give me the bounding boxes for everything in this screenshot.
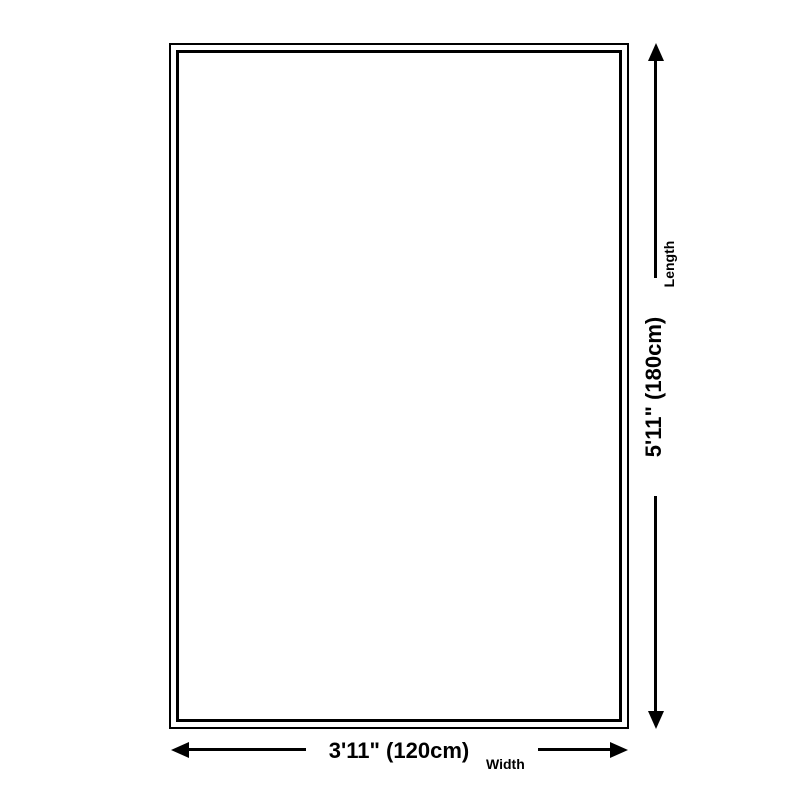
length-dimension-value: 5'11" (180cm) — [642, 297, 666, 477]
width-dimension-line-right — [538, 748, 610, 751]
length-dimension-caption: Length — [661, 234, 677, 294]
width-dimension-value: 3'11" (120cm) — [169, 740, 629, 762]
dimension-diagram: 3'11" (120cm) Width Length 5'11" (180cm) — [0, 0, 800, 800]
length-dimension-line-bottom — [654, 496, 657, 712]
product-outline-inner — [176, 50, 622, 722]
product-outline-outer — [169, 43, 629, 729]
arrow-up-icon — [648, 43, 664, 61]
length-dimension-line-top — [654, 60, 657, 278]
arrow-down-icon — [648, 711, 664, 729]
width-dimension-caption: Width — [486, 757, 525, 771]
arrow-right-icon — [610, 742, 628, 758]
